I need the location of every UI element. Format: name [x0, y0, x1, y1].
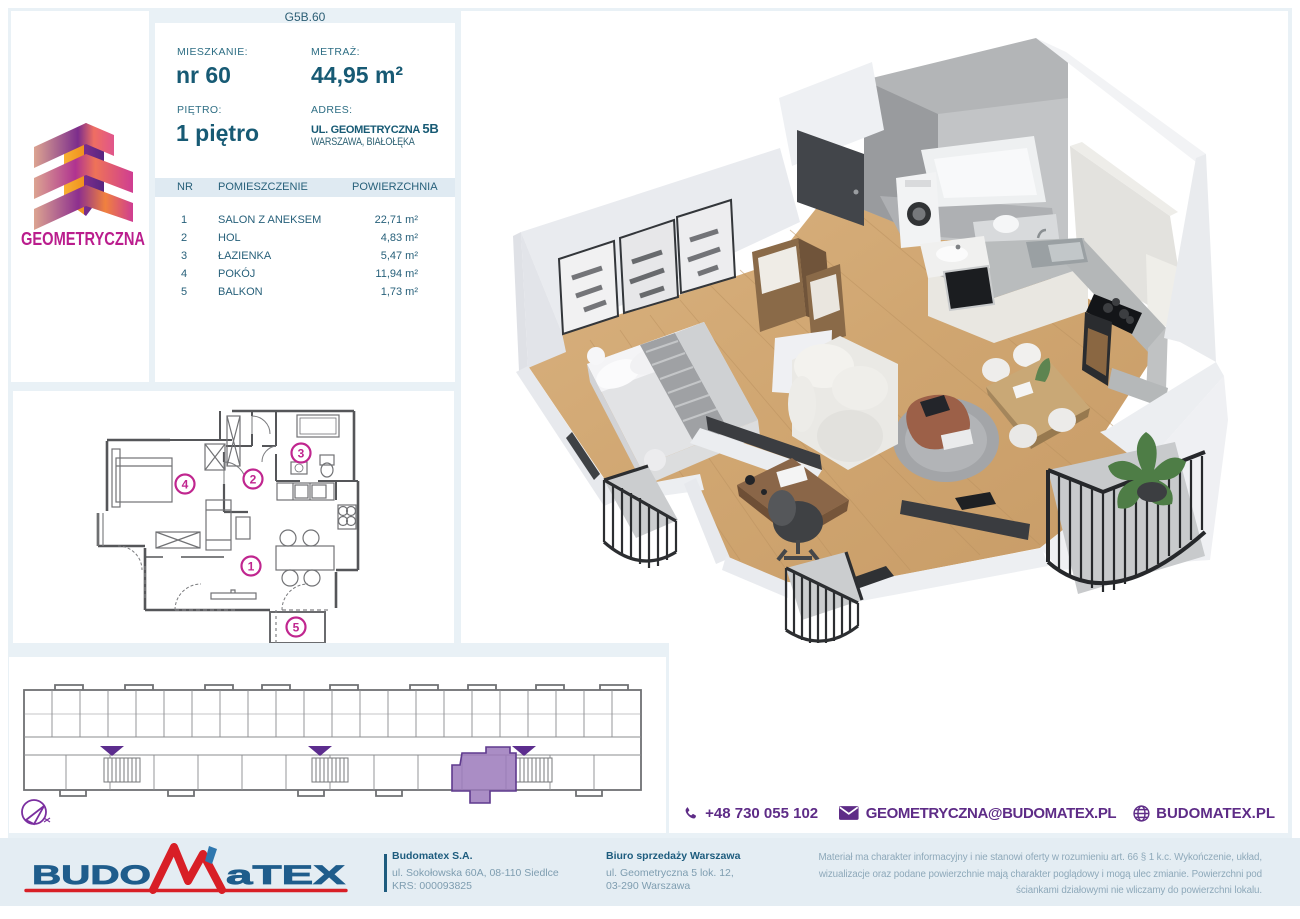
svg-text:5: 5 — [293, 621, 300, 635]
svg-text:1: 1 — [248, 560, 255, 574]
svg-text:BUDO: BUDO — [32, 860, 151, 890]
svg-text:3: 3 — [298, 447, 305, 461]
svg-text:aTEX: aTEX — [226, 860, 345, 890]
svg-text:2: 2 — [250, 473, 257, 487]
svg-text:4: 4 — [182, 478, 189, 492]
svg-text:GEOMETRYCZNA: GEOMETRYCZNA — [21, 229, 145, 249]
